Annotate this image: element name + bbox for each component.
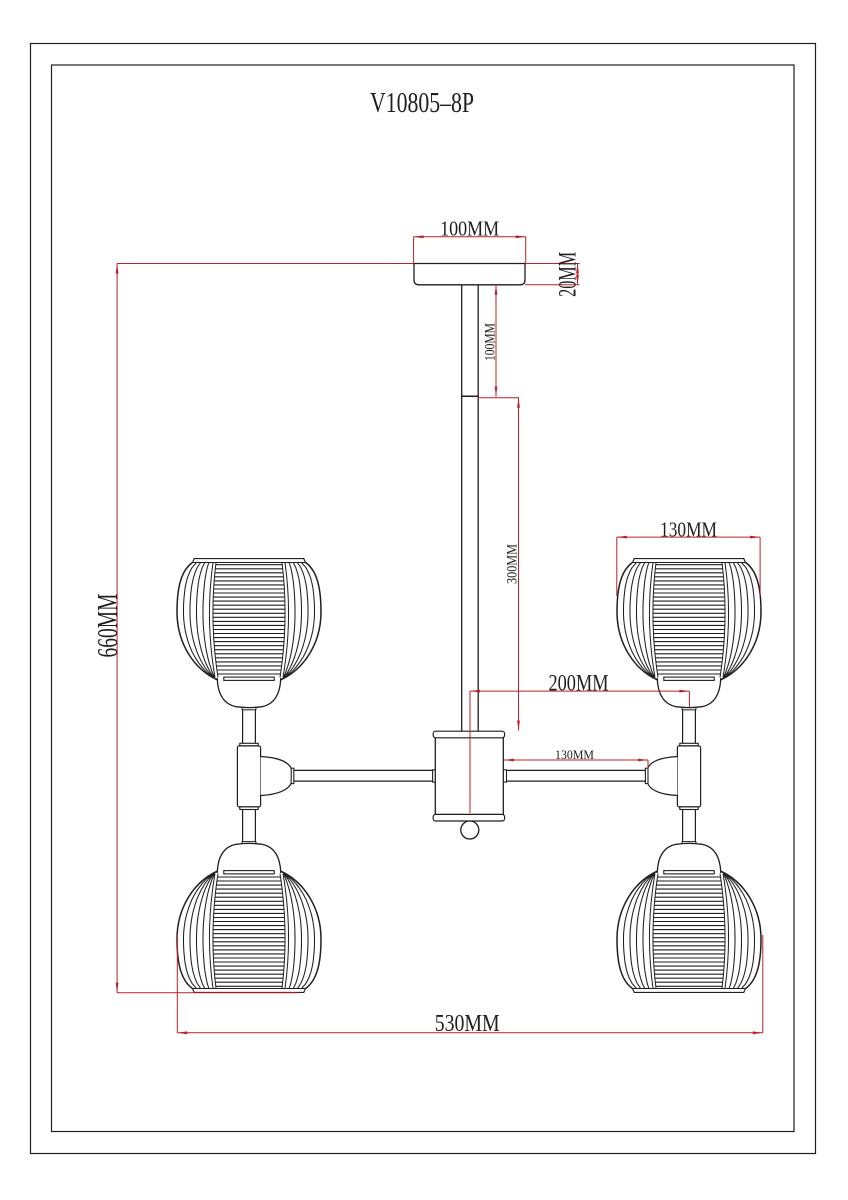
svg-text:300MM: 300MM [504, 544, 520, 584]
svg-text:100MM: 100MM [440, 216, 499, 240]
svg-text:100MM: 100MM [483, 323, 499, 361]
svg-text:20MM: 20MM [555, 252, 582, 297]
svg-text:200MM: 200MM [549, 670, 609, 695]
svg-text:530MM: 530MM [435, 1011, 500, 1037]
svg-text:660MM: 660MM [93, 593, 124, 657]
svg-text:130MM: 130MM [555, 747, 594, 762]
svg-text:130MM: 130MM [660, 517, 717, 541]
svg-text:V10805–8P: V10805–8P [370, 88, 474, 119]
